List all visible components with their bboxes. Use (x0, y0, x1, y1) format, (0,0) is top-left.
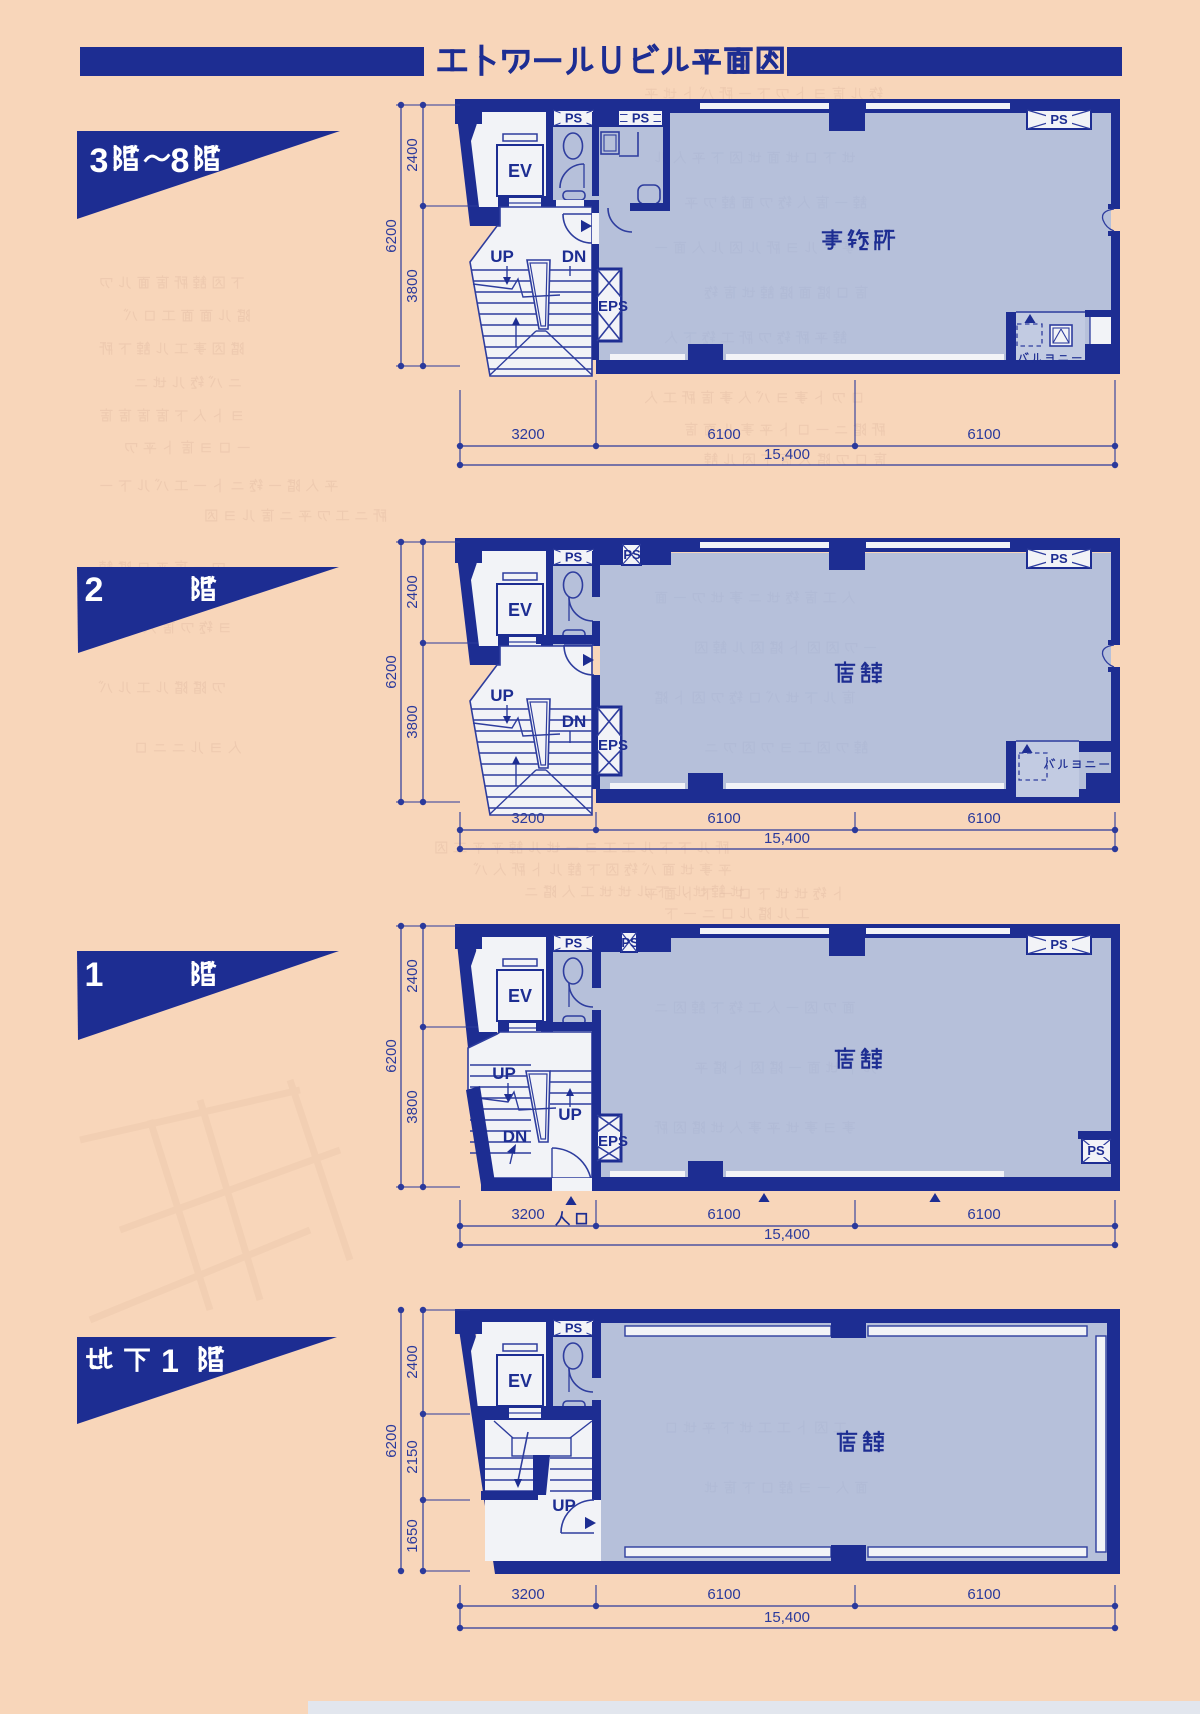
svg-text:1650: 1650 (404, 1519, 421, 1552)
svg-text:UP: UP (490, 247, 514, 266)
svg-text:PS: PS (1087, 1143, 1105, 1158)
svg-text:EV: EV (508, 161, 532, 181)
svg-text:15,400: 15,400 (764, 1226, 810, 1243)
svg-text:3: 3 (90, 142, 109, 180)
svg-text:15,400: 15,400 (764, 830, 810, 847)
svg-text:UP: UP (552, 1496, 576, 1515)
svg-text:6200: 6200 (383, 1424, 400, 1457)
svg-text:UP: UP (490, 686, 514, 705)
svg-text:DN: DN (562, 712, 587, 731)
svg-text:3800: 3800 (404, 1090, 421, 1123)
svg-text:3800: 3800 (404, 705, 421, 738)
svg-text:3200: 3200 (511, 1586, 544, 1603)
svg-text:6100: 6100 (707, 810, 740, 827)
svg-text:6100: 6100 (967, 810, 1000, 827)
svg-text:3200: 3200 (511, 1206, 544, 1223)
svg-text:PS: PS (1050, 937, 1068, 952)
svg-text:6100: 6100 (967, 1586, 1000, 1603)
svg-text:6100: 6100 (707, 426, 740, 443)
svg-text:EPS: EPS (598, 737, 628, 754)
svg-text:PS: PS (565, 936, 583, 951)
svg-text:1: 1 (161, 1343, 179, 1379)
svg-text:2400: 2400 (404, 575, 421, 608)
svg-text:EV: EV (508, 986, 532, 1006)
svg-text:6200: 6200 (383, 219, 400, 252)
svg-text:DN: DN (503, 1127, 528, 1146)
svg-text:PS: PS (621, 935, 639, 950)
svg-text:PS: PS (623, 547, 641, 562)
svg-text:PS: PS (565, 1321, 583, 1336)
svg-text:DN: DN (562, 247, 587, 266)
svg-text:6100: 6100 (707, 1586, 740, 1603)
svg-text:2400: 2400 (404, 138, 421, 171)
svg-text:EV: EV (508, 600, 532, 620)
svg-text:PS: PS (1050, 551, 1068, 566)
svg-text:1: 1 (85, 956, 104, 994)
svg-text:3200: 3200 (511, 810, 544, 827)
svg-text:UP: UP (492, 1064, 516, 1083)
svg-text:8: 8 (171, 142, 190, 180)
svg-text:3800: 3800 (404, 269, 421, 302)
svg-text:PS: PS (1050, 112, 1068, 127)
svg-text:EPS: EPS (598, 1133, 628, 1150)
svg-text:15,400: 15,400 (764, 1609, 810, 1626)
svg-text:PS: PS (632, 111, 650, 126)
svg-text:15,400: 15,400 (764, 446, 810, 463)
svg-text:3200: 3200 (511, 426, 544, 443)
svg-text:6100: 6100 (967, 1206, 1000, 1223)
svg-text:6200: 6200 (383, 1039, 400, 1072)
svg-text:2: 2 (85, 571, 104, 609)
svg-text:6100: 6100 (967, 426, 1000, 443)
svg-text:2150: 2150 (404, 1440, 421, 1473)
svg-text:6200: 6200 (383, 655, 400, 688)
svg-text:PS: PS (565, 550, 583, 565)
svg-text:EPS: EPS (598, 298, 628, 315)
svg-text:UP: UP (558, 1105, 582, 1124)
svg-text:6100: 6100 (707, 1206, 740, 1223)
svg-text:2400: 2400 (404, 1345, 421, 1378)
svg-text:2400: 2400 (404, 959, 421, 992)
svg-text:PS: PS (565, 111, 583, 126)
svg-text:EV: EV (508, 1371, 532, 1391)
